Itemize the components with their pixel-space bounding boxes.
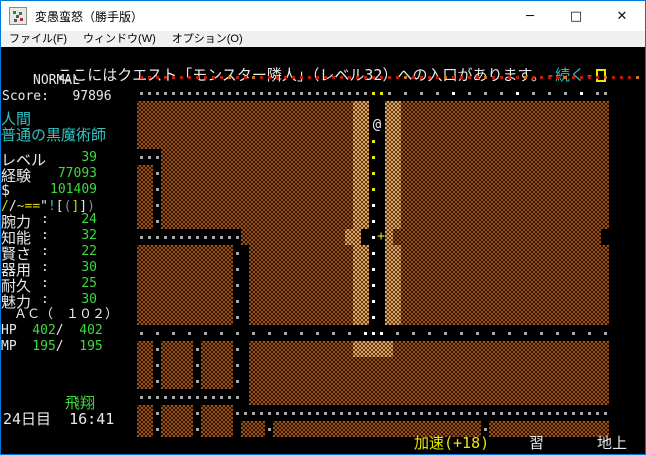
floor-dot bbox=[476, 332, 479, 335]
lit-wall-tile bbox=[353, 117, 369, 133]
floor-dot bbox=[204, 76, 207, 79]
wall-tile bbox=[249, 293, 353, 309]
floor-dot bbox=[180, 396, 183, 399]
floor-dot bbox=[268, 76, 271, 79]
floor-dot bbox=[140, 156, 143, 159]
hp-max: 402 bbox=[64, 323, 103, 338]
wall-tile bbox=[401, 117, 609, 133]
floor-dot bbox=[556, 412, 559, 415]
floor-dot bbox=[356, 92, 359, 95]
hp-slash: / bbox=[56, 323, 64, 338]
wall-tile bbox=[161, 357, 193, 373]
floor-dot bbox=[508, 332, 511, 335]
floor-dot bbox=[156, 348, 159, 351]
floor-dot bbox=[348, 412, 351, 415]
floor-dot bbox=[588, 76, 591, 79]
wall-tile bbox=[249, 389, 609, 405]
floor-dot bbox=[172, 76, 175, 79]
floor-dot bbox=[236, 76, 239, 79]
floor-dot bbox=[604, 412, 607, 415]
floor-dot bbox=[204, 332, 207, 335]
stat-row: 耐久:25 bbox=[1, 275, 137, 291]
floor-dot bbox=[316, 412, 319, 415]
floor-dot bbox=[396, 332, 399, 335]
wall-tile bbox=[401, 309, 609, 325]
floor-dot bbox=[236, 348, 239, 351]
floor-dot bbox=[292, 412, 295, 415]
floor-dot bbox=[396, 412, 399, 415]
floor-dot bbox=[300, 412, 303, 415]
floor-dot bbox=[260, 76, 263, 79]
floor-dot bbox=[612, 76, 615, 79]
floor-dot bbox=[388, 76, 391, 79]
floor-dot bbox=[252, 332, 255, 335]
floor-dot bbox=[284, 412, 287, 415]
floor-dot bbox=[348, 332, 351, 335]
floor-dot bbox=[372, 412, 375, 415]
info-row: レベル39 bbox=[1, 149, 137, 165]
floor-dot bbox=[420, 412, 423, 415]
bottom-status-bar: 加速(+18) 習 地上 bbox=[1, 435, 646, 451]
floor-dot bbox=[436, 92, 439, 95]
floor-dot bbox=[380, 92, 383, 95]
floor-dot bbox=[196, 412, 199, 415]
floor-dot bbox=[156, 396, 159, 399]
wall-tile bbox=[393, 341, 609, 357]
lit-wall-tile bbox=[353, 277, 369, 293]
floor-dot bbox=[500, 92, 503, 95]
equipment-line: //~=="![(]]) bbox=[1, 195, 137, 211]
floor-dot bbox=[180, 92, 183, 95]
floor-dot bbox=[388, 92, 391, 95]
minimize-button[interactable]: ─ bbox=[507, 1, 553, 31]
floor-dot bbox=[156, 236, 159, 239]
floor-dot bbox=[468, 92, 471, 95]
wall-tile bbox=[249, 309, 353, 325]
wall-tile bbox=[401, 165, 609, 181]
wall-tile bbox=[137, 197, 153, 213]
floor-dot bbox=[340, 92, 343, 95]
wall-tile bbox=[161, 181, 353, 197]
wall-tile bbox=[161, 149, 353, 165]
floor-dot bbox=[244, 92, 247, 95]
wall-tile bbox=[137, 293, 233, 309]
floor-dot bbox=[572, 332, 575, 335]
floor-dot bbox=[204, 92, 207, 95]
floor-dot bbox=[628, 76, 631, 79]
lit-wall-tile bbox=[385, 277, 401, 293]
floor-dot bbox=[276, 92, 279, 95]
floor-dot bbox=[156, 156, 159, 159]
floor-dot bbox=[484, 92, 487, 95]
floor-dot bbox=[372, 332, 375, 335]
wall-tile bbox=[137, 101, 353, 117]
floor-dot bbox=[548, 92, 551, 95]
wall-tile bbox=[201, 341, 233, 357]
floor-dot bbox=[196, 428, 199, 431]
floor-dot bbox=[324, 92, 327, 95]
floor-dot bbox=[516, 92, 519, 95]
floor-dot bbox=[140, 76, 143, 79]
floor-dot bbox=[148, 92, 151, 95]
floor-dot bbox=[372, 300, 375, 303]
hp-current: 402 bbox=[17, 323, 56, 338]
info-row: 経験77093 bbox=[1, 165, 137, 181]
floor-dot bbox=[588, 332, 591, 335]
floor-dot bbox=[164, 76, 167, 79]
floor-dot bbox=[156, 364, 159, 367]
floor-dot bbox=[580, 76, 583, 79]
depth-indicator: 地上 bbox=[597, 435, 627, 451]
floor-dot bbox=[236, 364, 239, 367]
wall-tile bbox=[161, 197, 353, 213]
floor-dot bbox=[372, 284, 375, 287]
floor-dot bbox=[452, 76, 455, 79]
maximize-button[interactable]: □ bbox=[553, 1, 599, 31]
wall-tile bbox=[401, 181, 609, 197]
info-value: 77093 bbox=[41, 166, 97, 181]
hp-label: HP bbox=[1, 323, 17, 338]
floor-dot bbox=[524, 412, 527, 415]
floor-dot bbox=[268, 412, 271, 415]
floor-dot bbox=[196, 348, 199, 351]
lit-wall-tile bbox=[385, 213, 401, 229]
wall-tile bbox=[161, 373, 193, 389]
floor-dot bbox=[164, 236, 167, 239]
floor-dot bbox=[196, 396, 199, 399]
app-window: 変愚蛮怒（勝手版） ─ □ ✕ ファイル(F) ウィンドウ(W) オプション(O… bbox=[0, 0, 646, 455]
floor-dot bbox=[500, 76, 503, 79]
floor-dot bbox=[380, 412, 383, 415]
floor-dot bbox=[564, 412, 567, 415]
floor-dot bbox=[244, 412, 247, 415]
floor-dot bbox=[548, 76, 551, 79]
floor-dot bbox=[276, 76, 279, 79]
floor-dot bbox=[156, 332, 159, 335]
stat-value: 30 bbox=[41, 260, 97, 275]
floor-dot bbox=[156, 172, 159, 175]
floor-dot bbox=[196, 236, 199, 239]
floor-dot bbox=[260, 412, 263, 415]
wall-tile bbox=[393, 229, 601, 245]
floor-dot bbox=[196, 364, 199, 367]
lit-wall-tile bbox=[385, 293, 401, 309]
floor-dot bbox=[140, 236, 143, 239]
floor-dot bbox=[420, 76, 423, 79]
floor-dot bbox=[404, 92, 407, 95]
floor-dot bbox=[364, 76, 367, 79]
floor-dot bbox=[268, 332, 271, 335]
floor-dot bbox=[308, 76, 311, 79]
floor-dot bbox=[212, 396, 215, 399]
floor-dot bbox=[492, 412, 495, 415]
floor-dot bbox=[388, 412, 391, 415]
game-terminal: ここにはクエスト「モンスター隣人」（レベル32）への入口があります。-続く- N… bbox=[1, 47, 646, 455]
floor-dot bbox=[228, 76, 231, 79]
floor-dot bbox=[332, 92, 335, 95]
floor-dot bbox=[452, 92, 455, 95]
floor-dot bbox=[372, 252, 375, 255]
floor-dot bbox=[580, 412, 583, 415]
floor-dot bbox=[164, 92, 167, 95]
floor-dot bbox=[524, 76, 527, 79]
stat-value: 25 bbox=[41, 276, 97, 291]
wall-tile bbox=[401, 277, 609, 293]
floor-dot bbox=[236, 92, 239, 95]
floor-dot bbox=[516, 76, 519, 79]
floor-dot bbox=[156, 188, 159, 191]
floor-dot bbox=[212, 92, 215, 95]
floor-dot bbox=[460, 76, 463, 79]
lit-wall-tile bbox=[345, 229, 361, 245]
wall-tile bbox=[161, 165, 353, 181]
menu-bar: ファイル(F) ウィンドウ(W) オプション(O) bbox=[1, 31, 645, 47]
floor-dot bbox=[228, 396, 231, 399]
floor-dot bbox=[604, 332, 607, 335]
hp-line: HP 402/ 402 bbox=[1, 323, 137, 339]
floor-dot bbox=[468, 76, 471, 79]
floor-dot bbox=[284, 92, 287, 95]
stat-row: 腕力:24 bbox=[1, 211, 137, 227]
floor-dot bbox=[428, 332, 431, 335]
wall-tile bbox=[401, 197, 609, 213]
wall-tile bbox=[201, 357, 233, 373]
score-line: Score: 97896 bbox=[2, 89, 112, 105]
floor-dot bbox=[364, 332, 367, 335]
mp-label: MP bbox=[1, 339, 17, 354]
floor-dot bbox=[236, 396, 239, 399]
menu-file[interactable]: ファイル(F) bbox=[1, 31, 75, 47]
floor-dot bbox=[364, 92, 367, 95]
floor-dot bbox=[460, 332, 463, 335]
floor-dot bbox=[212, 76, 215, 79]
floor-dot bbox=[308, 412, 311, 415]
floor-dot bbox=[436, 76, 439, 79]
lit-wall-tile bbox=[353, 341, 393, 357]
date-line: 24日目 16:41 bbox=[1, 411, 137, 427]
wall-tile bbox=[137, 373, 153, 389]
floor-dot bbox=[564, 76, 567, 79]
floor-dot bbox=[372, 204, 375, 207]
floor-dot bbox=[156, 204, 159, 207]
floor-dot bbox=[236, 284, 239, 287]
wall-tile bbox=[401, 245, 609, 261]
floor-dot bbox=[484, 428, 487, 431]
floor-dot bbox=[252, 92, 255, 95]
floor-dot bbox=[468, 412, 471, 415]
wall-tile bbox=[249, 357, 609, 373]
wall-tile bbox=[137, 165, 153, 181]
floor-dot bbox=[492, 76, 495, 79]
floor-dot bbox=[540, 332, 543, 335]
floor-dot bbox=[596, 412, 599, 415]
floor-dot bbox=[244, 76, 247, 79]
floor-dot bbox=[436, 412, 439, 415]
floor-dot bbox=[300, 76, 303, 79]
floor-dot bbox=[236, 300, 239, 303]
floor-dot bbox=[372, 220, 375, 223]
floor-dot bbox=[604, 76, 607, 79]
wall-tile bbox=[401, 133, 609, 149]
floor-dot bbox=[324, 76, 327, 79]
floor-dot bbox=[172, 236, 175, 239]
floor-dot bbox=[476, 412, 479, 415]
class-line: 普通の黒魔術師 bbox=[1, 127, 137, 143]
wall-tile bbox=[241, 229, 345, 245]
floor-dot bbox=[268, 92, 271, 95]
lit-wall-tile bbox=[385, 149, 401, 165]
stat-value: 24 bbox=[41, 212, 97, 227]
floor-dot bbox=[188, 396, 191, 399]
floor-dot bbox=[332, 332, 335, 335]
lit-wall-tile bbox=[385, 181, 401, 197]
floor-dot bbox=[380, 76, 383, 79]
wall-tile bbox=[201, 405, 233, 421]
floor-dot bbox=[252, 412, 255, 415]
floor-dot bbox=[156, 76, 159, 79]
mode-indicator: NORMAL bbox=[1, 73, 80, 89]
lit-wall-tile bbox=[385, 197, 401, 213]
lit-wall-tile bbox=[353, 149, 369, 165]
lit-wall-tile bbox=[353, 133, 369, 149]
floor-dot bbox=[292, 76, 295, 79]
floor-dot bbox=[236, 332, 239, 335]
floor-dot bbox=[596, 92, 599, 95]
mp-slash: / bbox=[56, 339, 64, 354]
player-symbol: @ bbox=[369, 117, 385, 133]
floor-dot bbox=[228, 92, 231, 95]
close-button[interactable]: ✕ bbox=[599, 1, 645, 31]
wall-tile bbox=[201, 373, 233, 389]
floor-dot bbox=[580, 92, 583, 95]
floor-dot bbox=[348, 76, 351, 79]
floor-dot bbox=[636, 76, 639, 79]
mp-max: 195 bbox=[64, 339, 103, 354]
stat-value: 22 bbox=[41, 244, 97, 259]
lit-wall-tile bbox=[385, 133, 401, 149]
wall-tile bbox=[137, 277, 233, 293]
wall-tile bbox=[401, 101, 609, 117]
mp-current: 195 bbox=[17, 339, 56, 354]
wall-tile bbox=[401, 293, 609, 309]
lit-wall-tile bbox=[385, 261, 401, 277]
floor-dot bbox=[236, 252, 239, 255]
floor-dot bbox=[372, 236, 375, 239]
floor-dot bbox=[212, 236, 215, 239]
floor-dot bbox=[188, 76, 191, 79]
wall-tile bbox=[161, 341, 193, 357]
floor-dot bbox=[204, 396, 207, 399]
floor-dot bbox=[260, 92, 263, 95]
floor-dot bbox=[372, 92, 375, 95]
lit-wall-tile bbox=[353, 165, 369, 181]
floor-dot bbox=[220, 332, 223, 335]
wall-tile bbox=[161, 405, 193, 421]
floor-dot bbox=[516, 412, 519, 415]
lit-wall-tile bbox=[353, 197, 369, 213]
floor-dot bbox=[540, 412, 543, 415]
floor-dot bbox=[444, 76, 447, 79]
floor-dot bbox=[156, 92, 159, 95]
wall-tile bbox=[249, 373, 609, 389]
floor-dot bbox=[148, 396, 151, 399]
wall-tile bbox=[401, 261, 609, 277]
floor-dot bbox=[372, 172, 375, 175]
floor-dot bbox=[572, 412, 575, 415]
floor-dot bbox=[412, 76, 415, 79]
lit-wall-tile bbox=[353, 213, 369, 229]
floor-dot bbox=[540, 76, 543, 79]
lit-wall-tile bbox=[353, 245, 369, 261]
floor-dot bbox=[172, 92, 175, 95]
lit-wall-tile bbox=[385, 117, 401, 133]
floor-dot bbox=[220, 76, 223, 79]
floor-dot bbox=[340, 76, 343, 79]
floor-dot bbox=[164, 396, 167, 399]
wall-tile bbox=[249, 261, 353, 277]
floor-dot bbox=[484, 76, 487, 79]
title-bar[interactable]: 変愚蛮怒（勝手版） ─ □ ✕ bbox=[1, 1, 645, 31]
floor-dot bbox=[596, 76, 599, 79]
floor-dot bbox=[372, 140, 375, 143]
wall-tile bbox=[249, 277, 353, 293]
stat-row: 器用:30 bbox=[1, 259, 137, 275]
floor-dot bbox=[500, 412, 503, 415]
floor-dot bbox=[156, 428, 159, 431]
floor-dot bbox=[548, 412, 551, 415]
wall-tile bbox=[137, 341, 153, 357]
lit-wall-tile bbox=[385, 165, 401, 181]
floor-dot bbox=[156, 380, 159, 383]
floor-dot bbox=[180, 236, 183, 239]
window-title: 変愚蛮怒（勝手版） bbox=[35, 8, 143, 25]
floor-dot bbox=[412, 412, 415, 415]
floor-dot bbox=[532, 76, 535, 79]
study-indicator: 習 bbox=[529, 435, 544, 451]
dungeon-map: @+ bbox=[137, 69, 643, 437]
floor-dot bbox=[236, 268, 239, 271]
wall-tile bbox=[401, 213, 609, 229]
menu-options[interactable]: オプション(O) bbox=[164, 31, 251, 47]
floor-dot bbox=[276, 412, 279, 415]
floor-dot bbox=[300, 332, 303, 335]
floor-dot bbox=[372, 188, 375, 191]
menu-window[interactable]: ウィンドウ(W) bbox=[75, 31, 164, 47]
floor-dot bbox=[404, 412, 407, 415]
floor-dot bbox=[220, 396, 223, 399]
floor-dot bbox=[332, 76, 335, 79]
floor-dot bbox=[356, 76, 359, 79]
floor-dot bbox=[156, 412, 159, 415]
stat-row: 知能:32 bbox=[1, 227, 137, 243]
floor-dot bbox=[172, 396, 175, 399]
lit-wall-tile bbox=[385, 309, 401, 325]
floor-dot bbox=[156, 220, 159, 223]
floor-dot bbox=[348, 92, 351, 95]
floor-dot bbox=[220, 236, 223, 239]
wall-tile bbox=[161, 213, 353, 229]
floor-dot bbox=[316, 92, 319, 95]
floor-dot bbox=[380, 332, 383, 335]
floor-dot bbox=[556, 76, 559, 79]
wall-tile bbox=[401, 149, 609, 165]
floor-dot bbox=[188, 236, 191, 239]
wall-tile bbox=[137, 213, 153, 229]
wall-tile bbox=[137, 261, 233, 277]
floor-dot bbox=[564, 92, 567, 95]
race-line: 人間 bbox=[1, 111, 137, 127]
wall-tile bbox=[137, 181, 153, 197]
